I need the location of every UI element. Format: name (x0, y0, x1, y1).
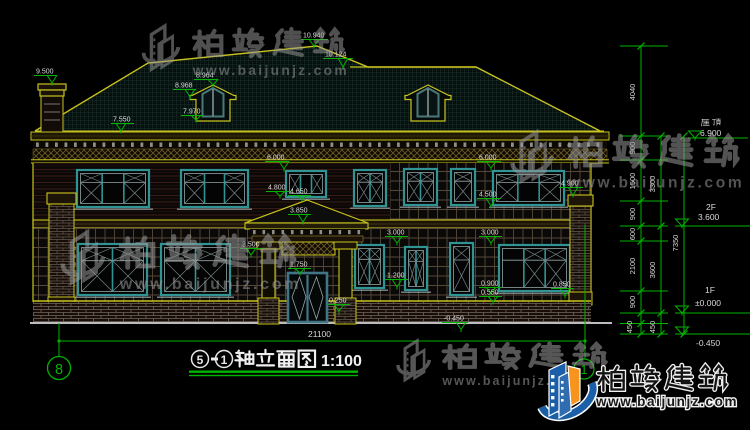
svg-text:8: 8 (55, 362, 63, 378)
svg-text:±0.000: ±0.000 (695, 298, 721, 308)
svg-text:www.baijunjz.com: www.baijunjz.com (567, 174, 744, 191)
svg-text:4.800: 4.800 (268, 185, 286, 192)
svg-text:8.968: 8.968 (175, 83, 193, 90)
svg-text:4.650: 4.650 (290, 189, 308, 196)
svg-text:3.000: 3.000 (481, 230, 499, 237)
svg-text:6.000: 6.000 (267, 155, 285, 162)
svg-text:7.970: 7.970 (183, 109, 201, 116)
svg-text:4.500: 4.500 (479, 192, 497, 199)
svg-text:0.850: 0.850 (553, 282, 571, 289)
svg-text:600: 600 (628, 228, 637, 241)
svg-text:450: 450 (648, 321, 657, 334)
svg-text:21100: 21100 (308, 329, 331, 339)
svg-text:3.000: 3.000 (387, 230, 405, 237)
svg-text:3600: 3600 (648, 262, 657, 279)
svg-text:900: 900 (628, 208, 637, 221)
svg-text:7.550: 7.550 (113, 117, 131, 124)
svg-text:5: 5 (197, 353, 204, 367)
svg-text:2F: 2F (706, 202, 716, 212)
svg-text:0.550: 0.550 (481, 290, 499, 297)
svg-text:4040: 4040 (628, 84, 637, 101)
svg-text:6.000: 6.000 (479, 155, 497, 162)
svg-text:900: 900 (628, 296, 637, 309)
svg-text:1.200: 1.200 (387, 273, 405, 280)
svg-text:www.baijunjz.com: www.baijunjz.com (119, 275, 301, 293)
svg-text:1: 1 (221, 353, 228, 367)
svg-text:7350: 7350 (671, 235, 680, 252)
svg-text:-0.450: -0.450 (696, 338, 720, 348)
svg-text:450: 450 (625, 321, 634, 334)
svg-text:3.600: 3.600 (698, 212, 720, 222)
svg-text:3.850: 3.850 (290, 208, 308, 215)
svg-text:0.900: 0.900 (481, 281, 499, 288)
svg-text:-0.450: -0.450 (444, 316, 464, 323)
svg-text:9.500: 9.500 (36, 69, 54, 76)
svg-text:www.baijunjz.com: www.baijunjz.com (192, 63, 349, 78)
svg-text:1F: 1F (705, 285, 715, 295)
svg-text:1:100: 1:100 (321, 353, 362, 370)
svg-text:0.250: 0.250 (329, 298, 347, 305)
svg-text:2100: 2100 (628, 258, 637, 275)
svg-text:www.baijunjz.com: www.baijunjz.com (595, 394, 738, 409)
